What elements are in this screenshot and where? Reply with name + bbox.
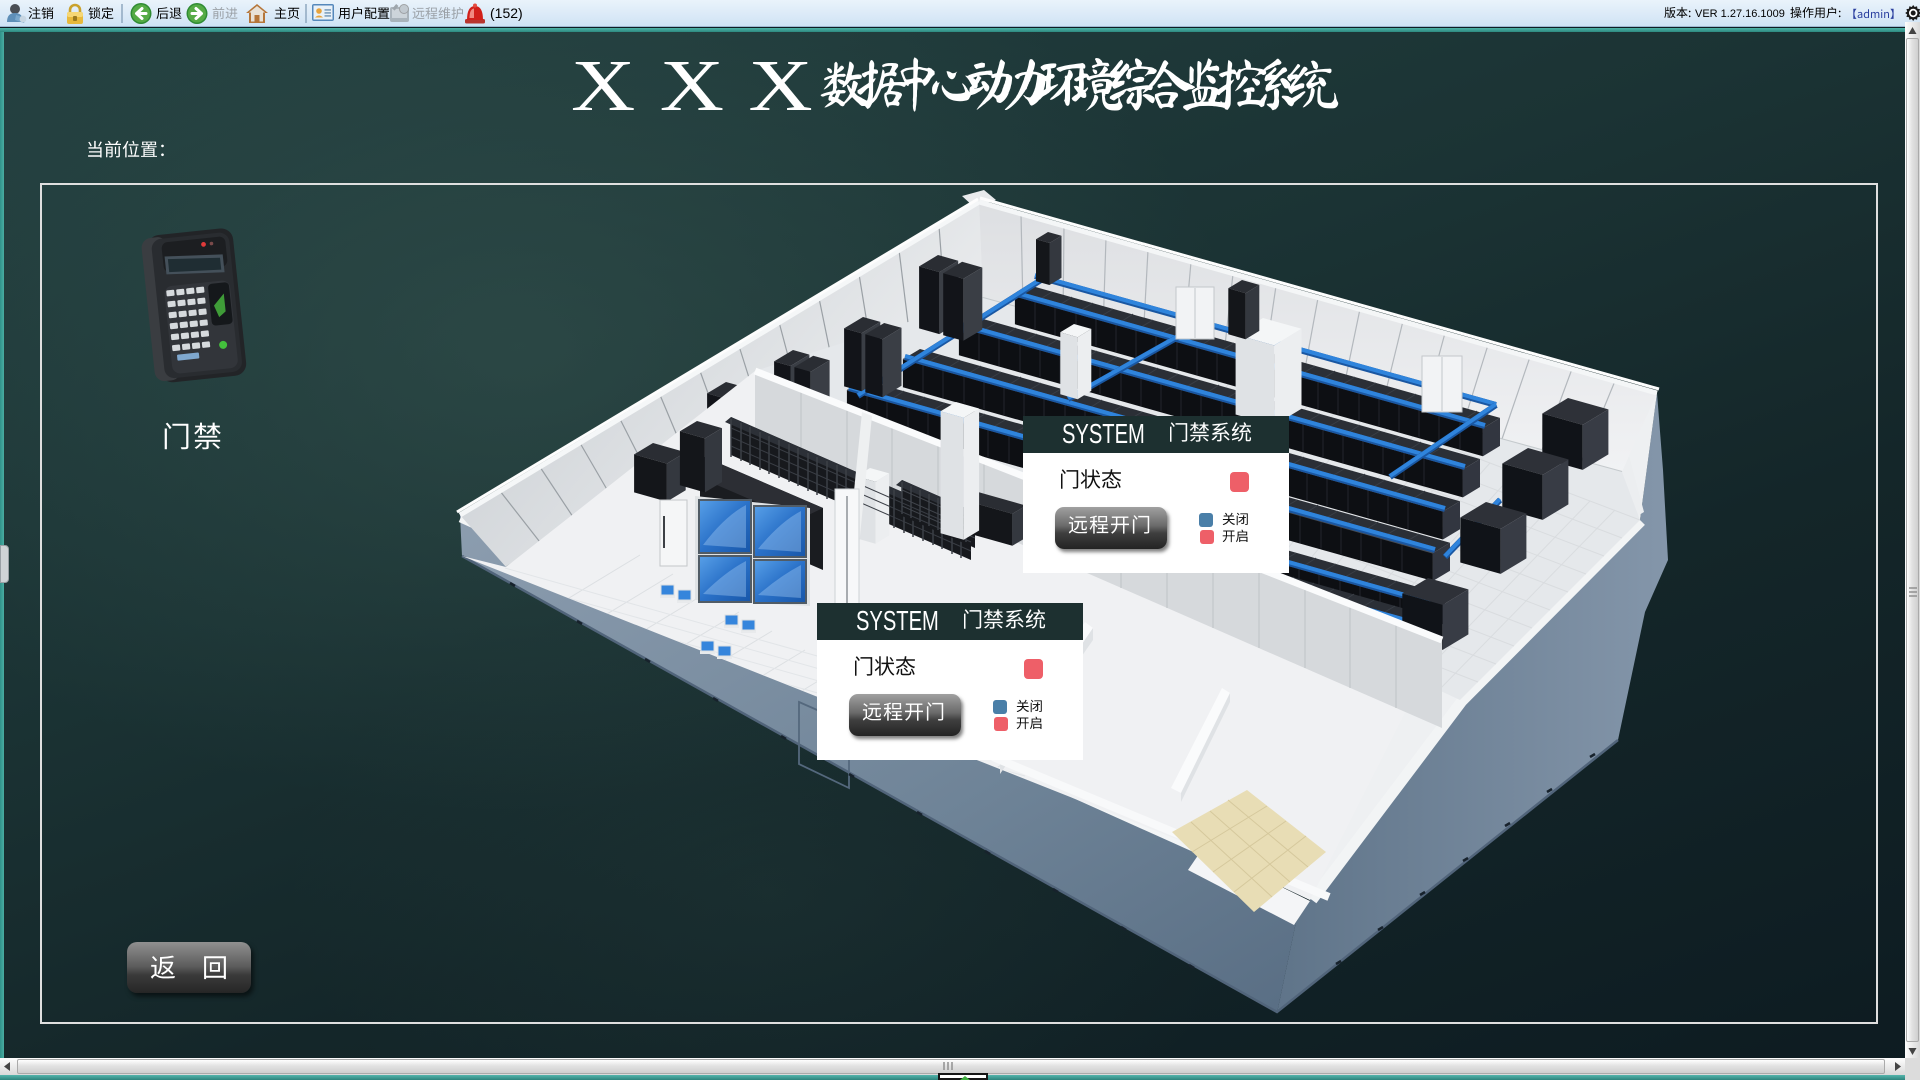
svg-text:SYSTEM: SYSTEM bbox=[1062, 419, 1145, 450]
svg-text:(152): (152) bbox=[490, 5, 523, 21]
svg-text:VER 1.27.16.1009: VER 1.27.16.1009 bbox=[1695, 8, 1785, 20]
svg-text:SYSTEM: SYSTEM bbox=[856, 606, 939, 637]
svg-text:XXX: XXX bbox=[571, 45, 837, 127]
